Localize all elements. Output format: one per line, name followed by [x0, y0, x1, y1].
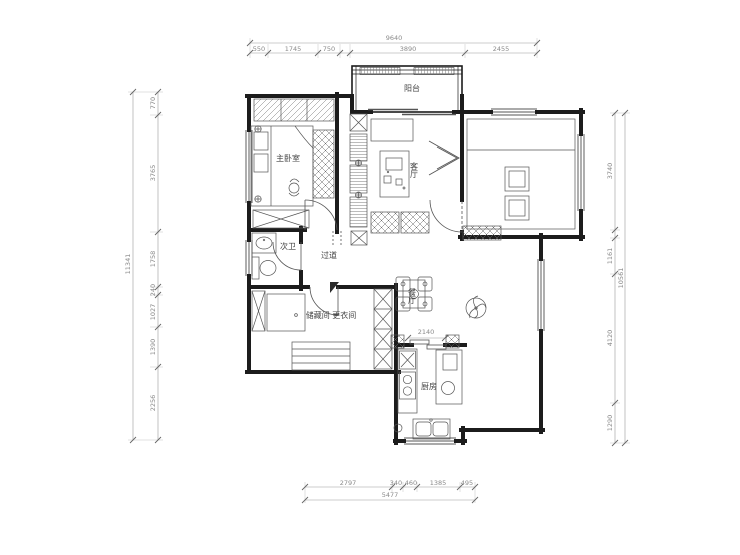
dim-bottom-seg-0: 2797 [340, 479, 357, 487]
dim-left-seg-0: 770 [149, 97, 157, 109]
dim-right-seg-1: 1161 [606, 248, 614, 265]
dimension-extension-lines [128, 38, 630, 503]
dim-left-seg-1: 3765 [149, 165, 157, 182]
dim-top-seg-3: 3890 [400, 45, 417, 53]
window-dining-east [538, 259, 544, 331]
door-kitchen-slider [410, 340, 446, 349]
floor-plan-canvas: 9640 550 1745 750 3890 2455 11341 770 37… [0, 0, 740, 555]
dim-bottom-seg-4: 495 [461, 479, 473, 487]
walls [247, 94, 583, 443]
dimension-labels: 9640 550 1745 750 3890 2455 11341 770 37… [124, 34, 625, 499]
dim-top-seg-2: 750 [323, 45, 335, 53]
coffee-table-set [380, 151, 409, 197]
dim-left-seg-5: 1390 [149, 339, 157, 356]
room-label-balcony: 阳台 [404, 83, 420, 93]
room-label-living-room: 客厅 [410, 161, 419, 178]
dim-left-seg-2: 1758 [149, 251, 157, 268]
room-label-storage-dressing: 储藏间 更衣间 [306, 310, 357, 320]
dim-top-total: 9640 [386, 34, 403, 42]
wardrobe-master-top [254, 99, 334, 121]
dim-right-seg-0: 3740 [606, 163, 614, 180]
dim-bottom-seg-3: 1385 [430, 479, 447, 487]
dim-right-total: 10561 [617, 268, 625, 289]
wardrobe-master-side [313, 130, 334, 198]
floor-plan-drawing: 9640 550 1745 750 3890 2455 11341 770 37… [0, 0, 740, 555]
room-label-dining-room: 餐厅 [408, 288, 417, 304]
window-bedroom2-east [578, 134, 584, 211]
dim-kitchen-opening: 2140 [418, 328, 435, 336]
kitchen-counters [398, 349, 462, 413]
room-label-hallway: 过道 [321, 250, 337, 260]
bed-master [251, 126, 313, 206]
dim-right-seg-3: 1290 [606, 415, 614, 432]
door-bedroom2 [430, 200, 462, 232]
living-west-cabinets [350, 114, 367, 245]
entry-cabinet-left [371, 212, 399, 233]
room-label-second-bathroom: 次卫 [280, 241, 296, 251]
dim-left-seg-6: 2256 [149, 395, 157, 412]
kitchen-sink [394, 419, 450, 439]
entry-cabinet-right [401, 212, 429, 233]
tv-cabinet [371, 119, 413, 141]
room-label-master-bedroom: 主卧室 [276, 153, 300, 163]
plant [466, 296, 486, 318]
door-master-bedroom [305, 200, 337, 230]
view-arrow [429, 141, 459, 175]
bath-sink [252, 233, 276, 253]
curtain-bracket-icons [255, 126, 261, 202]
room-label-kitchen: 厨房 [421, 381, 437, 391]
dresser-master [253, 210, 309, 228]
dim-left-total: 11341 [124, 254, 132, 275]
window-bedroom2-north [491, 109, 537, 115]
dim-right-seg-2: 4120 [606, 330, 614, 347]
storage-cabinets [252, 291, 350, 370]
dim-bottom-seg-2: 460 [405, 479, 417, 487]
dim-left-seg-3: 240 [149, 284, 157, 296]
kitchen-flank-boxes [391, 335, 459, 348]
window-bath-west [246, 240, 252, 276]
dim-top-seg-1: 1745 [285, 45, 302, 53]
bedroom2-shaft [463, 226, 501, 240]
furniture [251, 99, 575, 439]
dim-top-seg-4: 2455 [493, 45, 510, 53]
bed-bedroom2 [467, 119, 575, 229]
dim-left-seg-4: 1027 [149, 304, 157, 321]
dim-bottom-seg-1: 340 [390, 479, 402, 487]
toilet [252, 257, 276, 279]
decor-master [289, 179, 299, 196]
storage-east-cabinet-strip [374, 289, 392, 369]
dim-top-seg-0: 550 [253, 45, 265, 53]
dim-bottom-total: 5477 [382, 491, 399, 499]
